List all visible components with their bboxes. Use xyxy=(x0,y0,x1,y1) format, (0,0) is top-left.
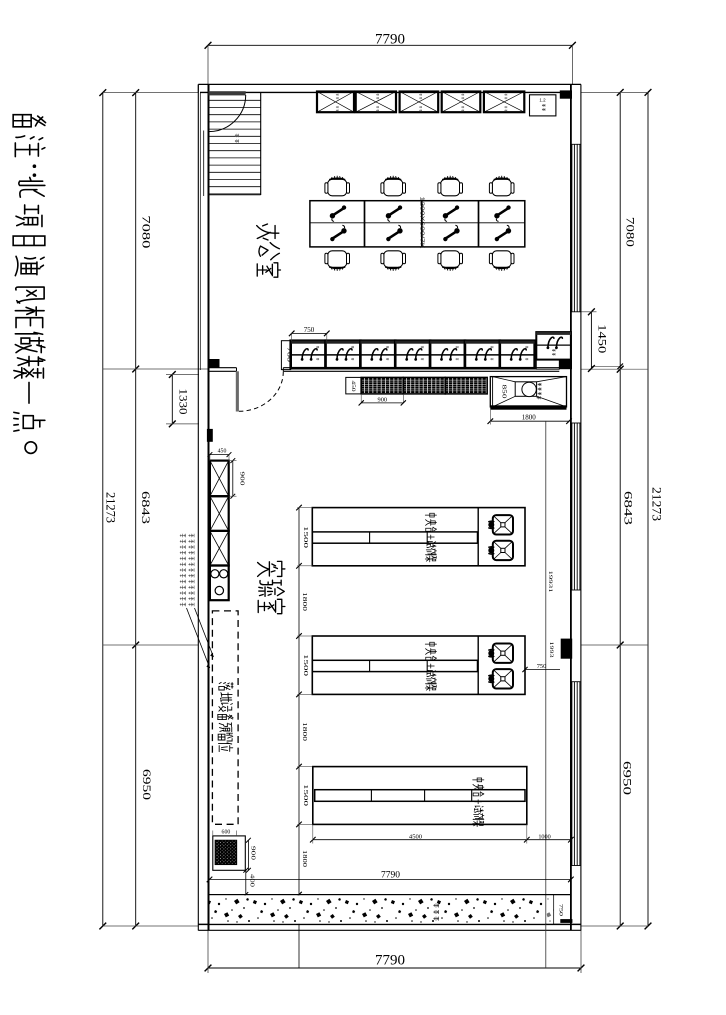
svg-text:850: 850 xyxy=(501,385,507,399)
svg-text:1.2: 1.2 xyxy=(539,98,546,103)
svg-text:750: 750 xyxy=(537,663,547,670)
svg-text:1800: 1800 xyxy=(522,413,537,421)
svg-text:1000: 1000 xyxy=(538,833,550,840)
svg-text:1200X600/7K: 1200X600/7K xyxy=(419,197,425,250)
svg-text:450: 450 xyxy=(218,448,227,454)
svg-text:1800: 1800 xyxy=(301,722,308,741)
svg-text:21273: 21273 xyxy=(104,492,118,523)
svg-text:1800: 1800 xyxy=(301,592,308,611)
svg-text:1330: 1330 xyxy=(177,389,191,415)
svg-text:6843: 6843 xyxy=(622,491,636,525)
svg-text:6950: 6950 xyxy=(621,761,635,795)
svg-text:1500: 1500 xyxy=(302,784,309,806)
svg-text:1500: 1500 xyxy=(302,526,309,548)
svg-text:750: 750 xyxy=(304,326,315,334)
svg-text:7790: 7790 xyxy=(375,953,405,969)
svg-text:6843: 6843 xyxy=(139,491,153,524)
svg-text:900: 900 xyxy=(378,397,388,404)
svg-text:750: 750 xyxy=(558,904,564,916)
svg-text:4500: 4500 xyxy=(409,833,423,840)
svg-text:21273: 21273 xyxy=(650,487,664,521)
svg-text:1800: 1800 xyxy=(301,850,308,867)
svg-text:1500: 1500 xyxy=(302,654,309,676)
svg-text:7080: 7080 xyxy=(624,217,638,247)
svg-text:7080: 7080 xyxy=(140,215,154,248)
svg-text:19931: 19931 xyxy=(547,571,552,594)
svg-text:1993: 1993 xyxy=(548,642,553,659)
svg-text:900: 900 xyxy=(249,846,255,860)
svg-text:6950: 6950 xyxy=(140,769,154,800)
svg-text:1450: 1450 xyxy=(596,324,610,353)
svg-text:7790: 7790 xyxy=(375,32,405,48)
svg-text:400: 400 xyxy=(248,874,254,887)
svg-text:900: 900 xyxy=(239,472,245,486)
svg-text:700: 700 xyxy=(285,347,291,362)
svg-text:600: 600 xyxy=(222,830,231,836)
svg-text:7790: 7790 xyxy=(381,871,400,881)
svg-text:450: 450 xyxy=(350,381,356,392)
